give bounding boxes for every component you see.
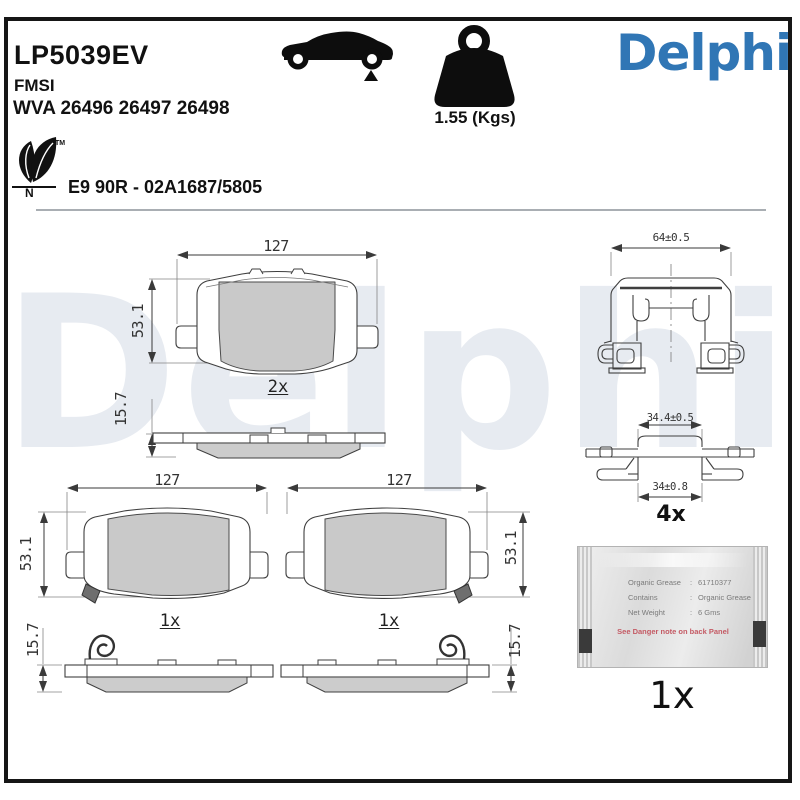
eco-leaf-icon — [12, 137, 56, 187]
pad-back-height-dim: 53.1 — [130, 301, 146, 341]
pad-side-top-thickness-dim: 15.7 — [113, 389, 129, 429]
clip-side-foot — [597, 457, 638, 480]
pad-front-right-width-dim: 127 — [379, 471, 419, 489]
rear-axle-marker-icon — [364, 70, 378, 81]
pad-side-bottom-left-drawing — [37, 628, 273, 692]
eco-letter: N — [25, 186, 34, 200]
weight-icon — [434, 29, 514, 107]
car-silhouette-icon — [282, 32, 393, 82]
clip-side-bottom-dim: 34±0.8 — [640, 481, 700, 493]
pad-front-left-drawing — [38, 488, 268, 603]
pad-ear — [176, 326, 197, 348]
pad-ear — [357, 326, 378, 348]
clip-foot — [697, 341, 744, 373]
weight-value: 1.55 (Kgs) — [425, 108, 525, 128]
clip-side-foot — [702, 457, 743, 480]
grease-sachet-photo: Organic Grease:61710377 Contains:Organic… — [577, 546, 768, 668]
pad-back-view-drawing — [149, 255, 378, 374]
pad-side-bottom-right-drawing — [281, 628, 517, 692]
clip-side-top-dim: 34.4±0.5 — [634, 412, 706, 424]
sachet-warning-text: See Danger note on back Panel — [608, 627, 738, 636]
friction-material-edge — [197, 443, 360, 458]
homologation-number: E9 90R - 02A1687/5805 — [68, 177, 262, 198]
eco-trademark: TM — [55, 140, 65, 147]
clip-foot — [598, 341, 645, 373]
wva-numbers: WVA 26496 26497 26498 — [13, 98, 230, 120]
sachet-qty: 1x — [642, 674, 702, 717]
clip-qty: 4x — [649, 502, 693, 527]
pad-front-left-height-dim: 53.1 — [18, 534, 34, 574]
pad-front-left-width-dim: 127 — [147, 471, 187, 489]
pad-front-right-height-dim: 53.1 — [503, 528, 519, 568]
pad-side-view-top-drawing — [146, 399, 385, 458]
pad-front-left-qty: 1x — [154, 611, 186, 631]
pad-side-right-thickness-dim: 15.7 — [507, 621, 523, 661]
pad-back-width-dim: 127 — [256, 237, 296, 255]
fmsi-label: FMSI — [14, 76, 55, 96]
datasheet-page: Delphi LP5039EV FMSI WVA 26496 26497 264… — [0, 0, 800, 800]
pad-back-qty: 2x — [262, 377, 294, 397]
brand-logo: Delphi — [616, 24, 791, 82]
pad-front-right-qty: 1x — [373, 611, 405, 631]
pad-side-left-thickness-dim: 15.7 — [25, 620, 41, 660]
part-number: LP5039EV — [14, 40, 149, 71]
pad-front-right-drawing — [286, 488, 530, 603]
clip-front-width-dim: 64±0.5 — [639, 231, 703, 244]
fitting-clip-front-drawing — [598, 248, 744, 373]
sachet-label-text: Organic Grease:61710377 Contains:Organic… — [628, 575, 768, 620]
friction-material — [219, 282, 335, 371]
